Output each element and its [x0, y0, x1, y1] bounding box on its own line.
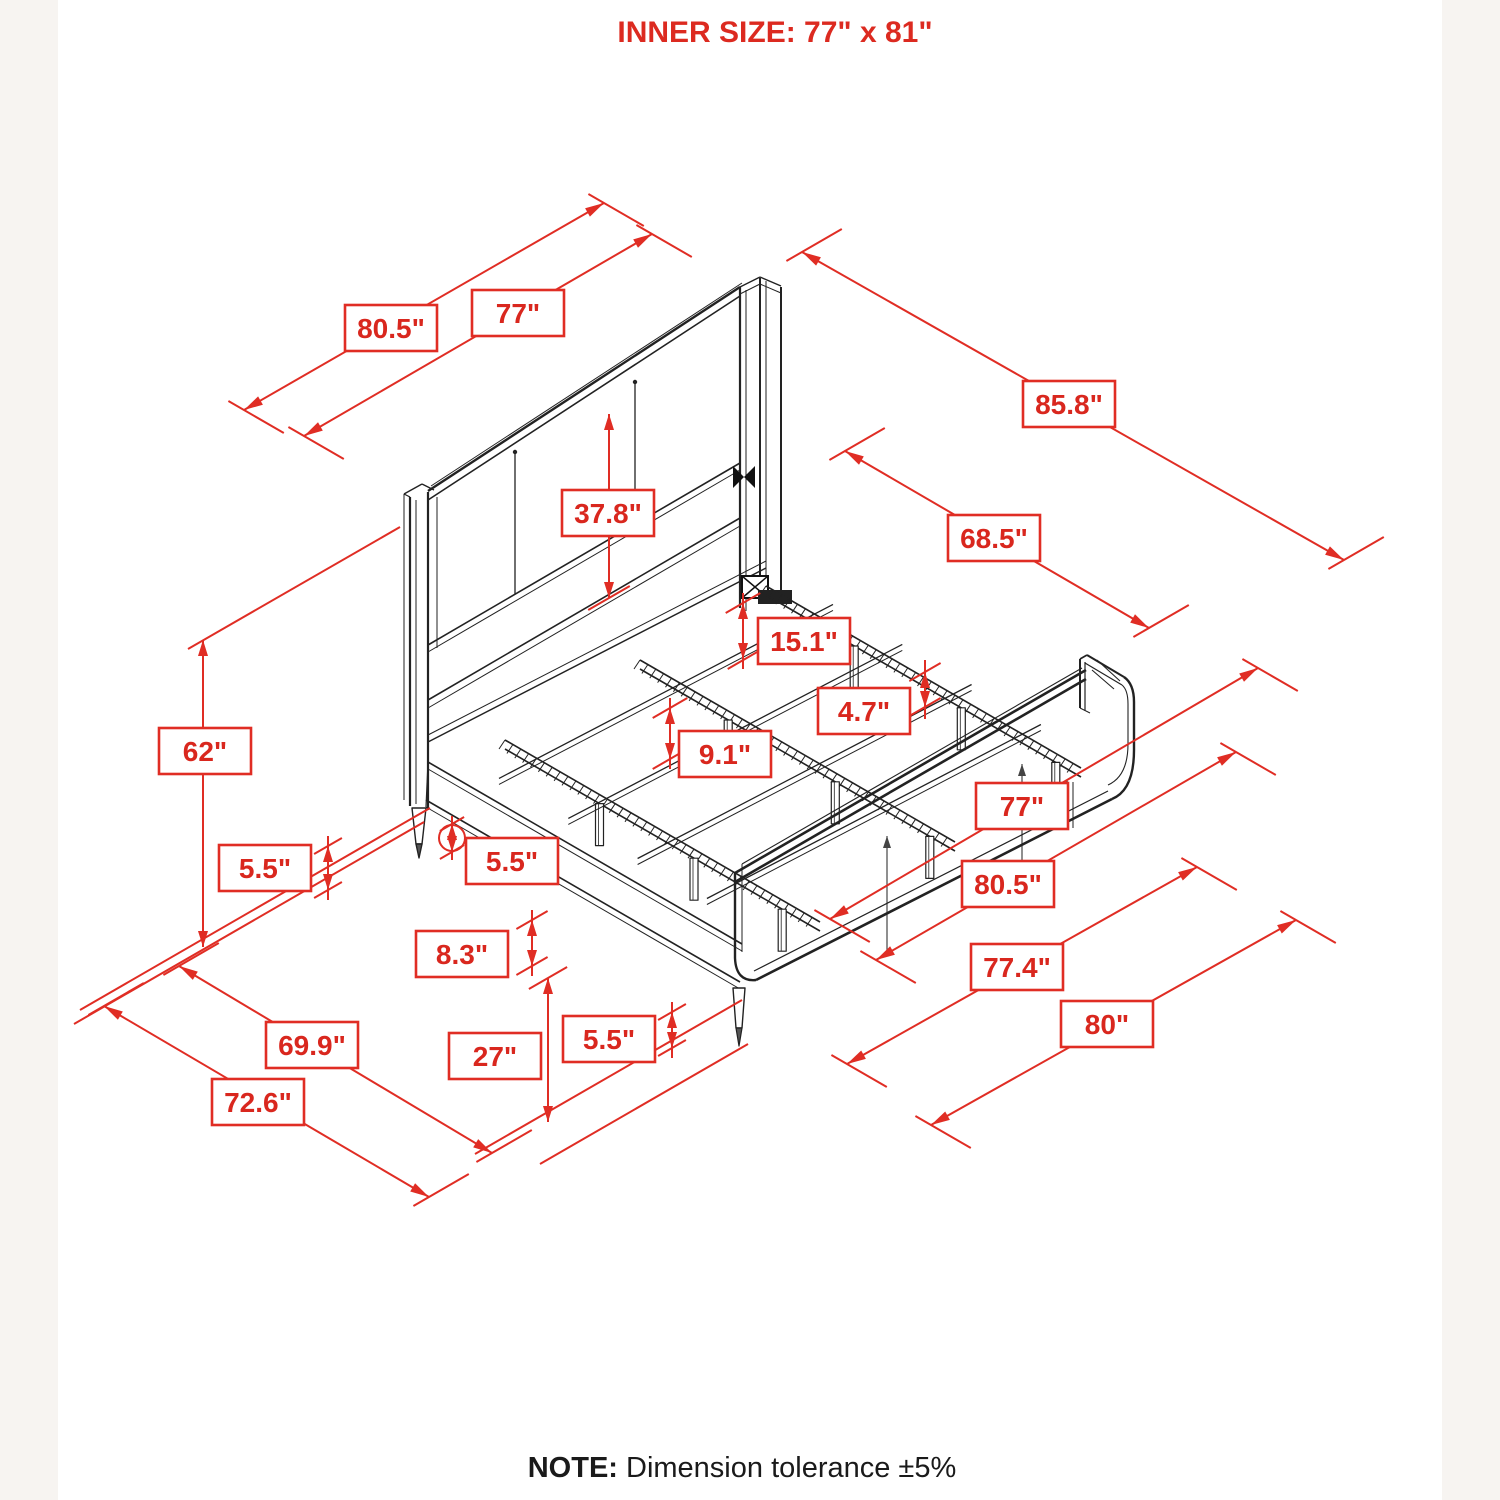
svg-text:5.5": 5.5" [486, 846, 538, 877]
svg-text:62": 62" [183, 736, 227, 767]
svg-text:8.3": 8.3" [436, 939, 488, 970]
svg-text:5.5": 5.5" [583, 1024, 635, 1055]
svg-text:80.5": 80.5" [974, 869, 1042, 900]
svg-text:80.5": 80.5" [357, 313, 425, 344]
svg-text:72.6": 72.6" [224, 1087, 292, 1118]
svg-text:15.1": 15.1" [770, 626, 838, 657]
svg-text:77": 77" [496, 298, 540, 329]
svg-text:37.8": 37.8" [574, 498, 642, 529]
svg-text:80": 80" [1085, 1009, 1129, 1040]
svg-text:77": 77" [1000, 791, 1044, 822]
svg-text:4.7": 4.7" [838, 696, 890, 727]
svg-text:85.8": 85.8" [1035, 389, 1103, 420]
svg-text:27": 27" [473, 1041, 517, 1072]
svg-text:69.9": 69.9" [278, 1030, 346, 1061]
svg-text:77.4": 77.4" [983, 952, 1051, 983]
svg-text:68.5": 68.5" [960, 523, 1028, 554]
svg-text:5.5": 5.5" [239, 853, 291, 884]
svg-text:9.1": 9.1" [699, 739, 751, 770]
